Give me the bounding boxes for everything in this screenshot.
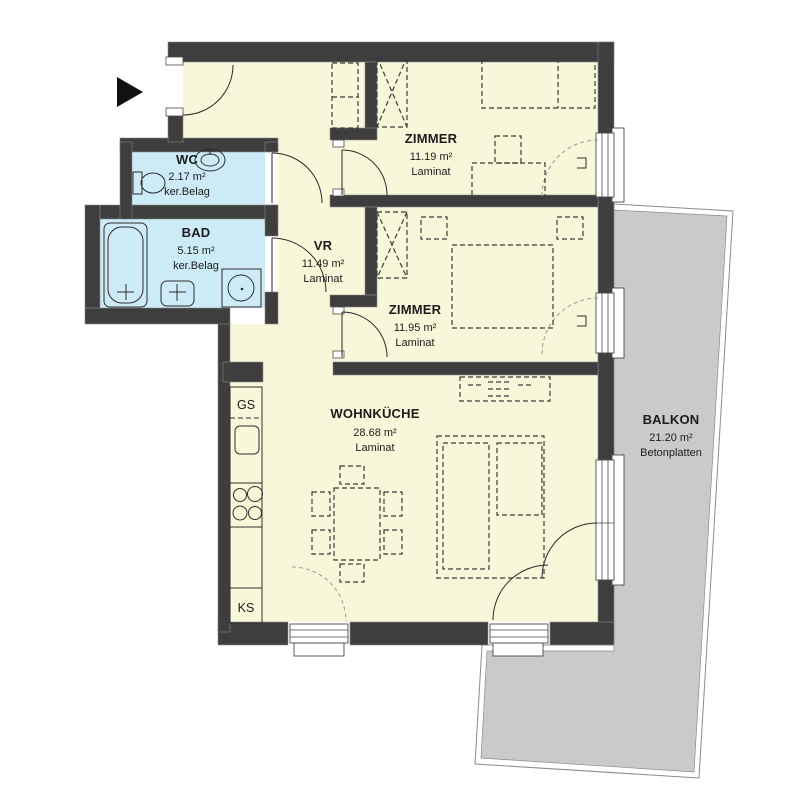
svg-text:WOHNKÜCHE: WOHNKÜCHE: [330, 406, 419, 421]
svg-text:21.20 m²: 21.20 m²: [649, 432, 693, 444]
svg-text:ZIMMER: ZIMMER: [405, 131, 458, 146]
svg-text:BAD: BAD: [182, 225, 211, 240]
wall-top: [168, 42, 614, 62]
svg-text:Laminat: Laminat: [355, 442, 394, 454]
svg-text:Laminat: Laminat: [395, 337, 434, 349]
svg-text:VR: VR: [314, 238, 333, 253]
svg-text:BALKON: BALKON: [643, 412, 700, 427]
svg-text:Betonplatten: Betonplatten: [640, 447, 702, 459]
label-zimmer1: ZIMMER 11.19 m² Laminat: [405, 131, 458, 178]
floor-plan-drawing: WC 2.17 m² ker.Belag BAD 5.15 m² ker.Bel…: [0, 0, 800, 800]
svg-text:11.19 m²: 11.19 m²: [410, 151, 453, 163]
svg-text:2.17 m²: 2.17 m²: [168, 171, 206, 183]
wall-zimmer1-zimmer2: [330, 195, 598, 207]
svg-text:5.15 m²: 5.15 m²: [177, 245, 215, 257]
wall-vr-zimmer1: [365, 62, 377, 132]
svg-text:Laminat: Laminat: [411, 166, 450, 178]
svg-text:ker.Belag: ker.Belag: [164, 186, 210, 198]
wall-zimmer2-wohnkueche: [333, 362, 598, 375]
svg-text:ZIMMER: ZIMMER: [389, 302, 442, 317]
svg-text:28.68 m²: 28.68 m²: [353, 427, 397, 439]
svg-text:11.95 m²: 11.95 m²: [394, 322, 437, 334]
entrance-arrow-icon: [117, 77, 143, 107]
floor-plan-page: WC 2.17 m² ker.Belag BAD 5.15 m² ker.Bel…: [0, 0, 800, 800]
label-dishwasher: GS: [237, 398, 255, 412]
svg-text:11.49 m²: 11.49 m²: [302, 258, 345, 270]
svg-text:ker.Belag: ker.Belag: [173, 260, 219, 272]
label-fridge: KS: [238, 601, 255, 615]
wall-vr-zimmer2: [365, 207, 377, 295]
svg-text:WC: WC: [176, 152, 198, 167]
wall-shaft: [223, 362, 263, 382]
label-balkon: BALKON 21.20 m² Betonplatten: [640, 412, 702, 459]
label-zimmer2: ZIMMER 11.95 m² Laminat: [389, 302, 442, 349]
svg-text:Laminat: Laminat: [303, 273, 342, 285]
